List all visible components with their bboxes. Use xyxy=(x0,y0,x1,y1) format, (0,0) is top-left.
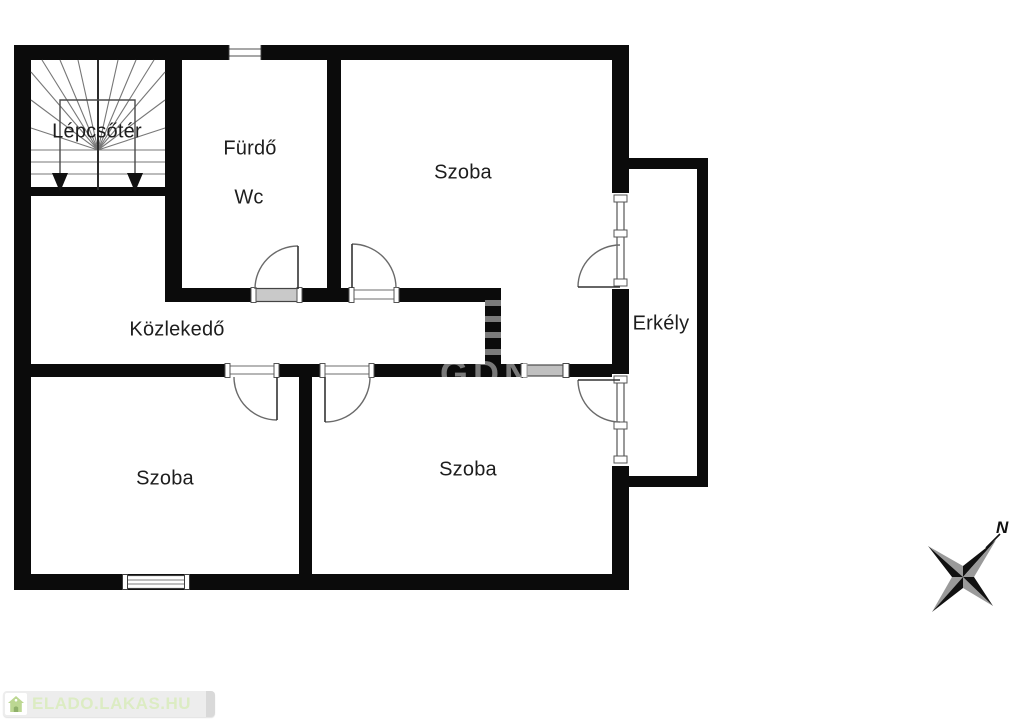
wall-segment xyxy=(27,187,182,196)
room-label-wc: Wc xyxy=(234,187,263,210)
door-arc xyxy=(325,377,370,422)
balcony-wall xyxy=(697,158,708,487)
house-icon xyxy=(5,693,27,715)
wall-segment xyxy=(612,45,629,590)
compass-rose: N xyxy=(928,518,1009,612)
room-label-room-bottom-left: Szoba xyxy=(136,468,194,491)
floor-plan-page: GDN N Lépcsőtér Fürdő Wc Szoba Közlekedő… xyxy=(0,0,1024,724)
wall-segment xyxy=(165,45,182,302)
window xyxy=(123,575,190,590)
window xyxy=(228,45,262,60)
room-label-room-top: Szoba xyxy=(434,162,492,185)
room-label-stairwell: Lépcsőtér xyxy=(52,121,142,144)
balcony-wall xyxy=(620,476,708,487)
balcony-glazed-door xyxy=(612,193,629,289)
balcony-wall xyxy=(620,158,708,169)
door-arc xyxy=(352,244,396,288)
wall-segment xyxy=(14,45,629,60)
watermark-text: GDN xyxy=(440,353,535,394)
wall-segment xyxy=(14,574,629,590)
balcony-glazed-door xyxy=(612,374,629,466)
wall-segment xyxy=(14,45,31,590)
door-threshold xyxy=(255,289,298,302)
door-swings xyxy=(234,244,620,422)
door-arc xyxy=(234,377,277,420)
wall-segment xyxy=(14,364,228,377)
wall-segment xyxy=(327,45,341,302)
room-label-balcony: Erkély xyxy=(633,313,690,336)
logo-right-cap xyxy=(206,691,215,717)
floor-plan-drawing: GDN N xyxy=(0,0,1024,724)
room-label-bathroom: Fürdő xyxy=(223,138,276,161)
site-logo-text: ELADO.LAKAS.HU xyxy=(27,691,206,717)
site-logo: ELADO.LAKAS.HU xyxy=(3,691,215,717)
door-arc xyxy=(255,246,298,289)
wall-segment xyxy=(165,288,255,302)
wall-segment xyxy=(298,288,352,302)
wall-segment xyxy=(299,364,312,590)
room-label-hallway: Közlekedő xyxy=(129,319,224,342)
room-label-room-bottom-middle: Szoba xyxy=(439,459,497,482)
north-label: N xyxy=(996,518,1009,537)
